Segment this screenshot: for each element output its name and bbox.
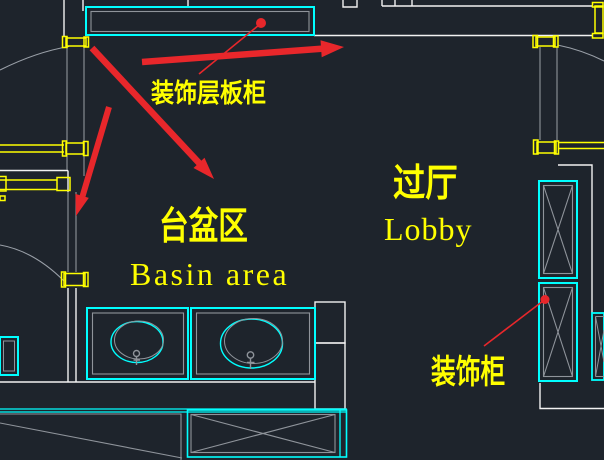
door-jamb-right-mid[interactable] [534, 140, 559, 154]
right-cell-x-brace [191, 415, 335, 453]
arrow-to-top-right[interactable] [142, 40, 344, 62]
door-jamb-top-right-corner[interactable] [593, 3, 604, 39]
door-jamb-left-mid[interactable] [63, 141, 89, 156]
counter-right-inner [197, 313, 310, 374]
cabinet-cross-line [0, 423, 182, 458]
door-jamb-left-bottom[interactable] [62, 272, 89, 287]
door-opening-left-low [68, 192, 76, 272]
leader-dot[interactable] [256, 18, 266, 28]
decor-cabinet-cell-1-x [544, 186, 573, 274]
leader-dot[interactable] [541, 295, 550, 304]
bottom-cabinet-row[interactable] [0, 409, 347, 460]
door-opening-left-top [67, 46, 84, 142]
side-cabinet-left-edge[interactable] [0, 337, 18, 375]
bottom-cabinet-left-cell[interactable] [0, 414, 182, 460]
bottom-cabinet-right-cell[interactable] [188, 410, 347, 457]
label-lobby-zh[interactable]: 过厅 [393, 164, 458, 202]
right-edge-cabinet-x [596, 317, 604, 377]
wall-top-small-box [343, 0, 357, 7]
wall-lines [0, 0, 604, 409]
shelf-cabinet-inner [91, 12, 309, 32]
label-shelf-cabinet[interactable]: 装饰层板柜 [151, 81, 266, 107]
door-opening-left-mid [67, 155, 84, 176]
label-basin-area-zh[interactable]: 台盆区 [159, 207, 248, 245]
cad-drawing-viewport[interactable]: 装饰层板柜 台盆区 Basin area 过厅 Lobby 装饰柜 [0, 0, 604, 460]
arrow-to-basin-counter[interactable] [92, 48, 214, 179]
basin-right-rim[interactable] [221, 319, 283, 368]
basin-counter-left[interactable] [87, 308, 188, 379]
detail-lines [67, 46, 557, 272]
door-arc-bottom-left [0, 245, 64, 281]
partition-block-lower [315, 343, 345, 409]
basin-right[interactable] [221, 319, 283, 370]
wall-left-bottom-pair [68, 288, 76, 382]
right-edge-cabinet[interactable] [592, 313, 604, 380]
label-basin-area-en[interactable]: Basin area [130, 258, 289, 290]
side-cabinet-outline[interactable] [0, 337, 18, 375]
door-jamb-top-right[interactable] [533, 36, 558, 48]
counter-left-outline[interactable] [87, 308, 188, 379]
shelf-cabinet-plan[interactable] [86, 7, 314, 35]
arrow-to-left-wall[interactable] [75, 107, 109, 216]
wall-lobby-bottom-right [540, 383, 604, 409]
wall-right-inner [558, 165, 592, 313]
door-frames [0, 3, 604, 288]
floor-plan-canvas[interactable] [0, 0, 604, 460]
side-cabinet-inner [4, 341, 15, 371]
right-edge-cabinet-outline[interactable] [592, 313, 604, 380]
label-decor-cabinet[interactable]: 装饰柜 [431, 355, 505, 388]
decor-cabinet-plan[interactable] [539, 181, 577, 381]
basin-left[interactable] [111, 321, 164, 365]
door-jamb-top-left[interactable] [63, 37, 89, 48]
partition-block-upper [315, 302, 345, 343]
wall-segment-yellow-a [0, 145, 64, 152]
right-cell-outline[interactable] [188, 410, 347, 457]
leader-shelf-cabinet[interactable] [199, 18, 266, 74]
label-lobby-en[interactable]: Lobby [384, 213, 473, 245]
wall-segment-yellow-b [0, 180, 57, 190]
door-arc-top-right [558, 45, 604, 61]
wall-segment-yellow-right [559, 143, 604, 149]
door-opening-right [540, 47, 557, 140]
door-arc-top-left [0, 47, 69, 71]
annotations-red [75, 18, 549, 346]
faucet-icon [247, 352, 255, 369]
wall-top-upper-line [382, 0, 592, 6]
